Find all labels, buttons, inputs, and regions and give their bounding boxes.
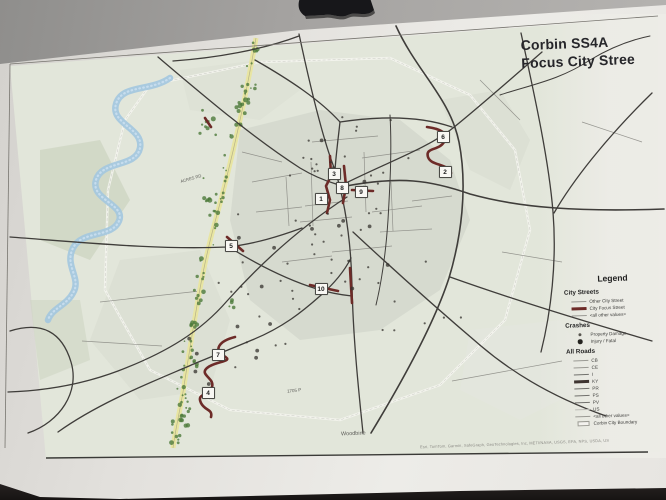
map-marker-1: 1: [315, 193, 328, 205]
map-marker-2: 2: [439, 166, 452, 178]
map-marker-7: 7: [212, 349, 225, 361]
legend-swatch-line-thin: [573, 357, 588, 364]
legend-swatch-line-thin: [571, 298, 586, 305]
map-title: Corbin SS4A Focus City Stree: [520, 32, 635, 73]
binder-clip-icon: [290, 0, 380, 24]
legend-item-label: PV: [593, 400, 599, 405]
map-marker-9: 9: [355, 186, 368, 198]
legend-item-label: Corbin City Boundary: [593, 419, 637, 426]
legend-swatch-line-light: [575, 406, 590, 413]
legend-item-label: Injury / Fatal: [591, 338, 616, 344]
map-marker-8: 8: [336, 182, 349, 194]
legend-item-label: CB: [591, 358, 598, 363]
legend-section: City StreetsOther City StreetCity Focus …: [564, 286, 663, 319]
legend-sections: City StreetsOther City StreetCity Focus …: [564, 286, 666, 427]
legend-item-label: US: [593, 407, 600, 412]
legend: Legend City StreetsOther City StreetCity…: [563, 271, 666, 427]
map-label: Woodbine: [341, 431, 366, 438]
photo-of-printed-map: 12345678910 Woodbine1705 PACRES RD Corbi…: [0, 0, 666, 500]
map-marker-5: 5: [225, 240, 238, 252]
legend-item-label: PR: [592, 386, 599, 391]
map-paper-sheet: 12345678910 Woodbine1705 PACRES RD Corbi…: [0, 0, 666, 500]
map-marker-4: 4: [202, 387, 215, 399]
legend-swatch-line-ky: [574, 378, 589, 385]
map-marker-10: 10: [315, 283, 328, 295]
legend-item-label: I: [592, 372, 593, 377]
legend-swatch-line-focus: [571, 305, 586, 312]
legend-item-label: <all other values>: [590, 312, 626, 318]
legend-item-label: CE: [592, 365, 599, 370]
legend-item-label: PS: [592, 393, 598, 398]
map-canvas: 12345678910 Woodbine1705 PACRES RD Corbi…: [0, 0, 666, 500]
legend-section: CrashesProperty DamageInjury / Fatal: [565, 319, 664, 345]
legend-swatch-line-med: [575, 399, 590, 406]
legend-swatch-line-med: [574, 385, 589, 392]
map-marker-6: 6: [437, 131, 450, 143]
legend-swatch-line-med: [574, 371, 589, 378]
legend-swatch-dot-large: [573, 338, 588, 345]
legend-swatch-rect-boundary: [575, 420, 590, 427]
legend-section: All RoadsCBCEIKYPRPSPVUS<all other value…: [566, 345, 666, 427]
legend-swatch-line-med: [574, 392, 589, 399]
legend-title: Legend: [563, 271, 661, 284]
legend-item-label: KY: [592, 379, 598, 384]
legend-swatch-line-thin: [574, 364, 589, 371]
legend-swatch-line-thin: [572, 312, 587, 319]
map-artwork: [0, 0, 666, 500]
map-marker-3: 3: [328, 168, 341, 180]
legend-swatch-line-thin: [575, 413, 590, 420]
legend-swatch-dot-small: [572, 331, 587, 338]
